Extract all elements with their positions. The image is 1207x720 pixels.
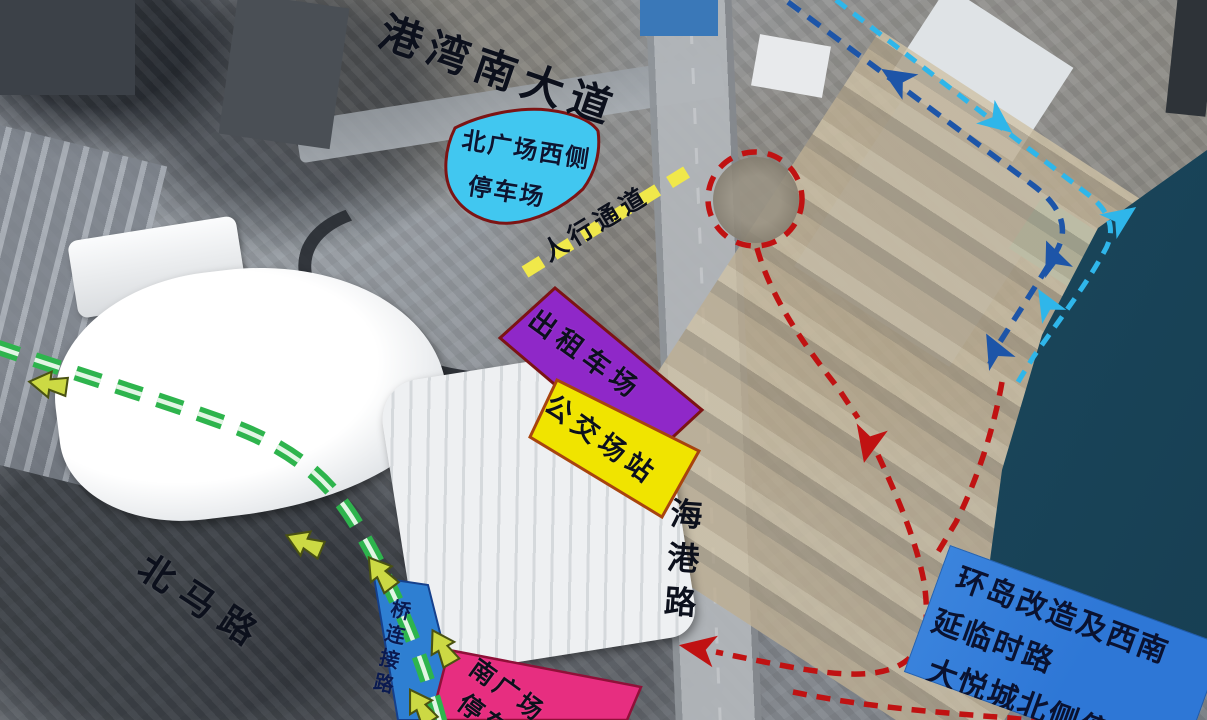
red-route-arrow-icon — [676, 629, 718, 667]
cyan-route-arrow-icon — [1099, 195, 1144, 239]
roundabout-ring — [708, 152, 802, 246]
navy-route-arrow-icon — [1032, 235, 1073, 278]
route-navy — [788, 2, 1073, 371]
green-route-arrow-icon — [281, 523, 326, 562]
navy-route-arrow-icon — [973, 326, 1016, 371]
route-cyan — [836, 0, 1145, 382]
green-route-arrow-icon — [27, 369, 68, 400]
satellite-traffic-map: 环岛改造及西南 延临时路 大悦城北侧停车场 港湾南大道 北广场西侧 停车场 人行… — [0, 0, 1207, 720]
